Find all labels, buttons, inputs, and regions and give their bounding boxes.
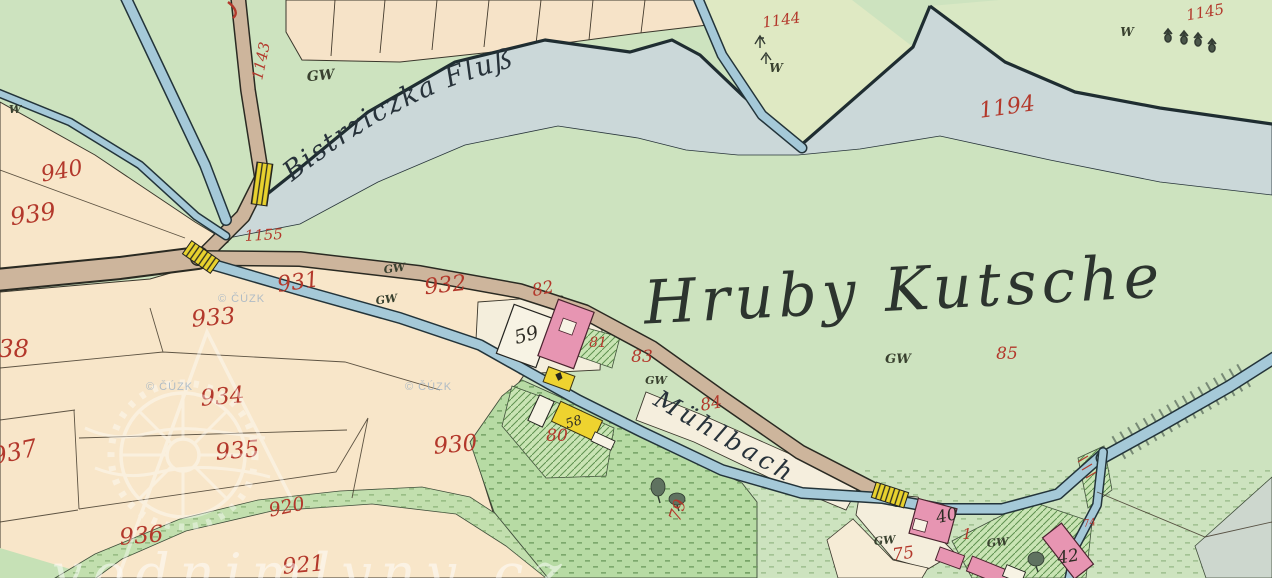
parcel-number: 938 [0, 335, 29, 363]
landuse-mark: GW [873, 533, 897, 548]
cadastral-map: 9409399389379339349359369309319329209211… [0, 0, 1272, 578]
landuse-mark: W [9, 103, 23, 116]
parcel-number: 81 [589, 335, 607, 351]
landuse-mark: W [1120, 25, 1135, 39]
watermark-cuzk: © ČÚZK [146, 380, 193, 393]
house-number: 42 [1055, 545, 1081, 569]
landuse-mark: W [769, 61, 784, 75]
watermark-cuzk: © ČÚZK [405, 380, 452, 393]
parcel-number: 932 [423, 271, 467, 300]
watermark-site-text: vodnimlyny cz [52, 542, 572, 578]
parcel-number: 80 [546, 426, 568, 446]
parcel-number: 74 [1082, 517, 1096, 530]
parcel-number: 930 [432, 430, 478, 460]
landuse-mark: GW [306, 67, 336, 85]
parcel-number: 933 [190, 303, 236, 333]
parcel-number: 1155 [244, 225, 283, 245]
parcel-number: 85 [996, 344, 1018, 364]
parcel-number: 83 [631, 347, 653, 367]
landuse-mark: GW [885, 352, 912, 367]
parcel-number: 1 [962, 525, 972, 543]
map-canvas: 9409399389379339349359369309319329209211… [0, 0, 1272, 578]
landuse-mark: GW [986, 535, 1010, 550]
watermark-cuzk: © ČÚZK [218, 292, 265, 305]
